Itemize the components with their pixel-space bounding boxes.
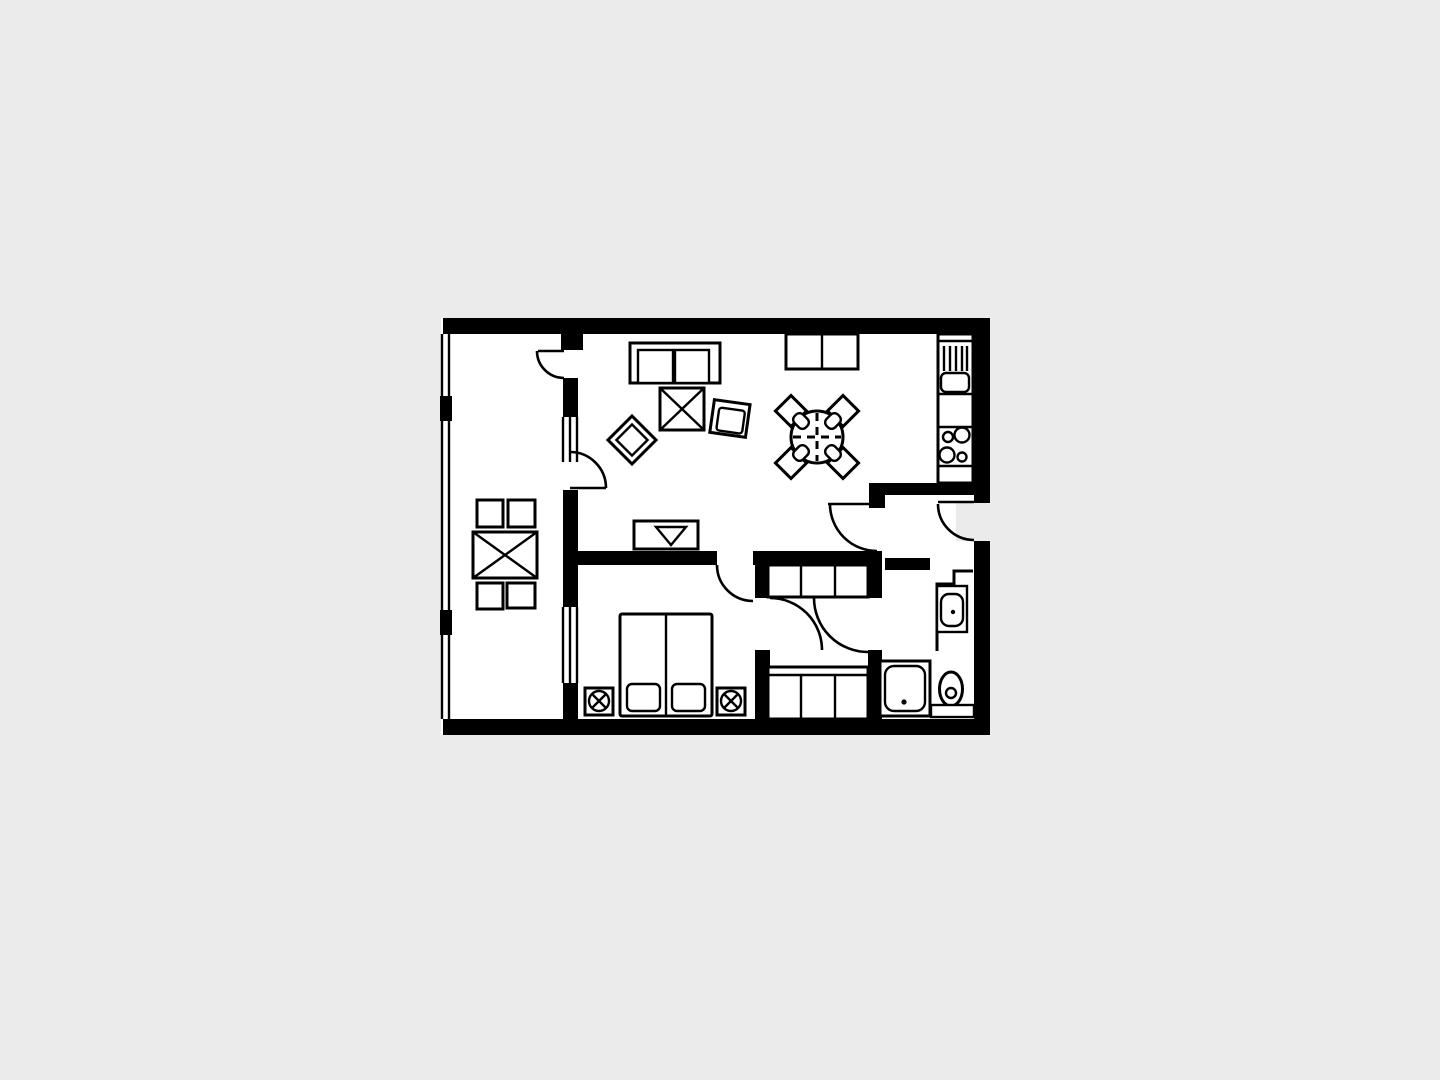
washbasin	[937, 586, 967, 632]
wall-right-upper	[974, 318, 990, 503]
wall-balcony-b	[563, 490, 578, 607]
wall-bottom	[443, 719, 990, 735]
wall-balcony-c	[563, 683, 578, 719]
wall-top	[443, 318, 990, 334]
wall-stub-top	[561, 334, 583, 350]
wall-living-bedroom-right	[753, 551, 882, 565]
armchair-tilted	[710, 400, 750, 438]
wall-balcony-a	[563, 378, 578, 417]
wall-hall-top	[873, 483, 974, 495]
sideboard	[786, 334, 858, 369]
wall-closet-east-upper	[868, 565, 882, 598]
wardrobe-bottom	[768, 667, 868, 719]
sofa	[630, 343, 720, 383]
nightstand-with-lamp	[585, 688, 613, 715]
pillow	[627, 684, 660, 711]
pillow	[672, 684, 705, 711]
screenshot	[0, 0, 1440, 1080]
floor-plan	[440, 318, 991, 735]
kitchenette	[938, 334, 973, 483]
tv	[634, 521, 698, 549]
coffee-table	[660, 388, 704, 430]
balcony-table	[473, 532, 537, 578]
nightstand-with-lamp	[717, 688, 745, 715]
shower	[880, 661, 930, 716]
balcony-stool	[477, 583, 503, 609]
wall-right-lower	[974, 541, 990, 735]
balcony-stool	[508, 500, 535, 527]
floor-plan-svg	[0, 0, 1440, 1080]
balcony-stool	[477, 500, 503, 527]
wall-living-bedroom-left	[578, 551, 717, 565]
wall-bathroom-top	[885, 558, 930, 570]
wardrobe-top	[768, 565, 868, 597]
balcony-stool	[507, 583, 535, 608]
double-bed	[620, 614, 712, 716]
